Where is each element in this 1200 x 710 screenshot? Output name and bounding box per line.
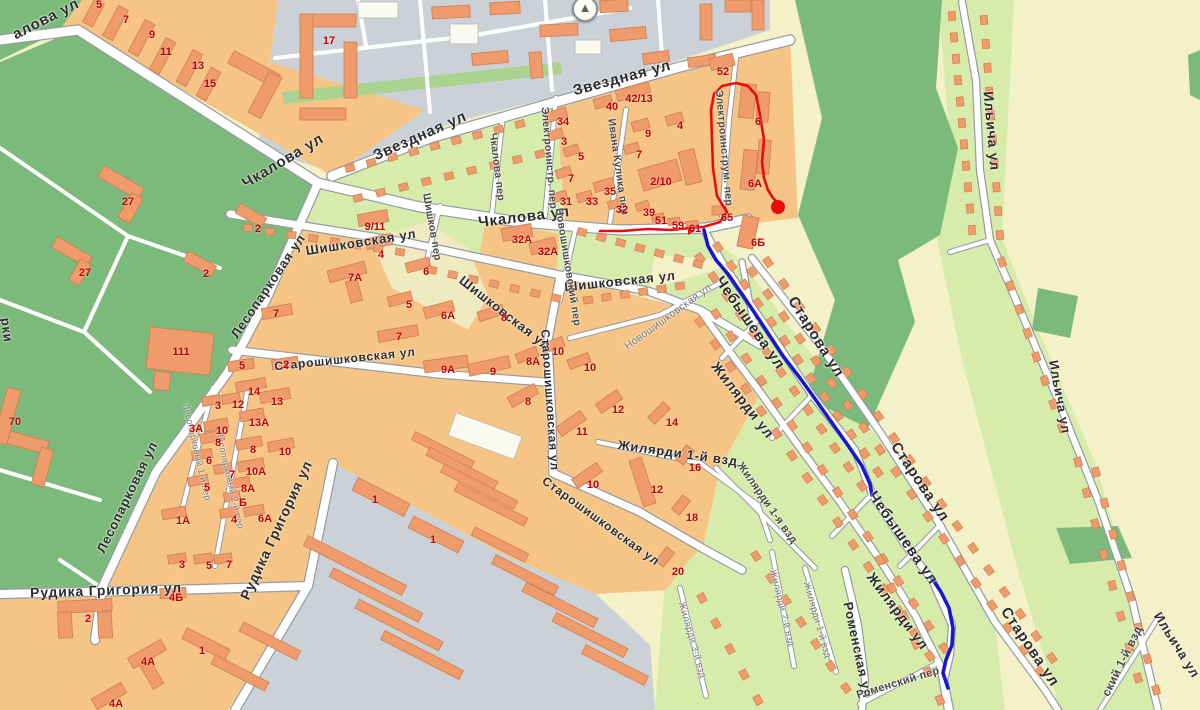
house	[982, 39, 990, 48]
house	[265, 227, 275, 235]
building	[193, 553, 212, 564]
house	[583, 296, 593, 304]
house	[994, 206, 1002, 215]
house	[996, 230, 1004, 239]
house	[964, 182, 972, 192]
house	[427, 266, 437, 275]
building	[752, 0, 764, 30]
house	[243, 224, 253, 232]
house	[448, 270, 458, 279]
house	[952, 54, 960, 64]
building	[300, 108, 346, 120]
building	[167, 553, 186, 564]
building	[160, 587, 186, 598]
house	[373, 244, 383, 252]
house	[489, 280, 499, 289]
building	[700, 4, 712, 40]
house	[986, 87, 994, 96]
house	[987, 111, 995, 120]
house	[984, 63, 992, 72]
building	[58, 599, 113, 614]
house	[954, 75, 962, 85]
building	[668, 217, 681, 226]
house	[530, 289, 540, 298]
building	[146, 327, 214, 375]
house	[620, 290, 630, 298]
house	[950, 33, 958, 43]
house	[962, 161, 970, 171]
building	[153, 371, 171, 391]
building	[450, 24, 478, 44]
house	[395, 248, 405, 256]
house	[960, 140, 968, 150]
building	[600, 0, 629, 13]
map-viewport[interactable]: алова улЧкалова улЧкалова улЗвездная улЗ…	[0, 0, 1200, 710]
house	[956, 97, 964, 107]
house	[657, 285, 667, 293]
building	[300, 14, 313, 98]
building	[610, 26, 647, 41]
building	[725, 0, 751, 12]
house	[330, 238, 340, 246]
building	[738, 83, 756, 118]
building	[358, 2, 398, 18]
building	[529, 52, 543, 79]
house	[352, 241, 362, 249]
building	[575, 40, 601, 54]
building	[344, 42, 357, 98]
house	[286, 231, 296, 239]
terrain-area	[1032, 288, 1078, 338]
building	[97, 612, 112, 639]
house	[675, 282, 685, 290]
house	[993, 182, 1001, 191]
building	[490, 1, 521, 15]
house	[989, 135, 997, 144]
house	[958, 118, 966, 128]
building	[472, 50, 509, 65]
house	[638, 287, 648, 295]
house	[948, 11, 956, 21]
house	[966, 204, 974, 214]
building	[57, 612, 72, 639]
building	[540, 23, 579, 37]
house	[601, 293, 611, 301]
house	[468, 275, 478, 284]
destination-marker[interactable]	[771, 200, 785, 214]
building	[432, 5, 471, 19]
house	[308, 234, 318, 242]
house	[980, 15, 988, 24]
building	[213, 553, 232, 564]
building	[651, 213, 664, 222]
house	[991, 159, 999, 168]
house	[968, 225, 976, 235]
house	[551, 294, 561, 303]
map-canvas[interactable]	[0, 0, 1200, 710]
house	[510, 284, 520, 293]
